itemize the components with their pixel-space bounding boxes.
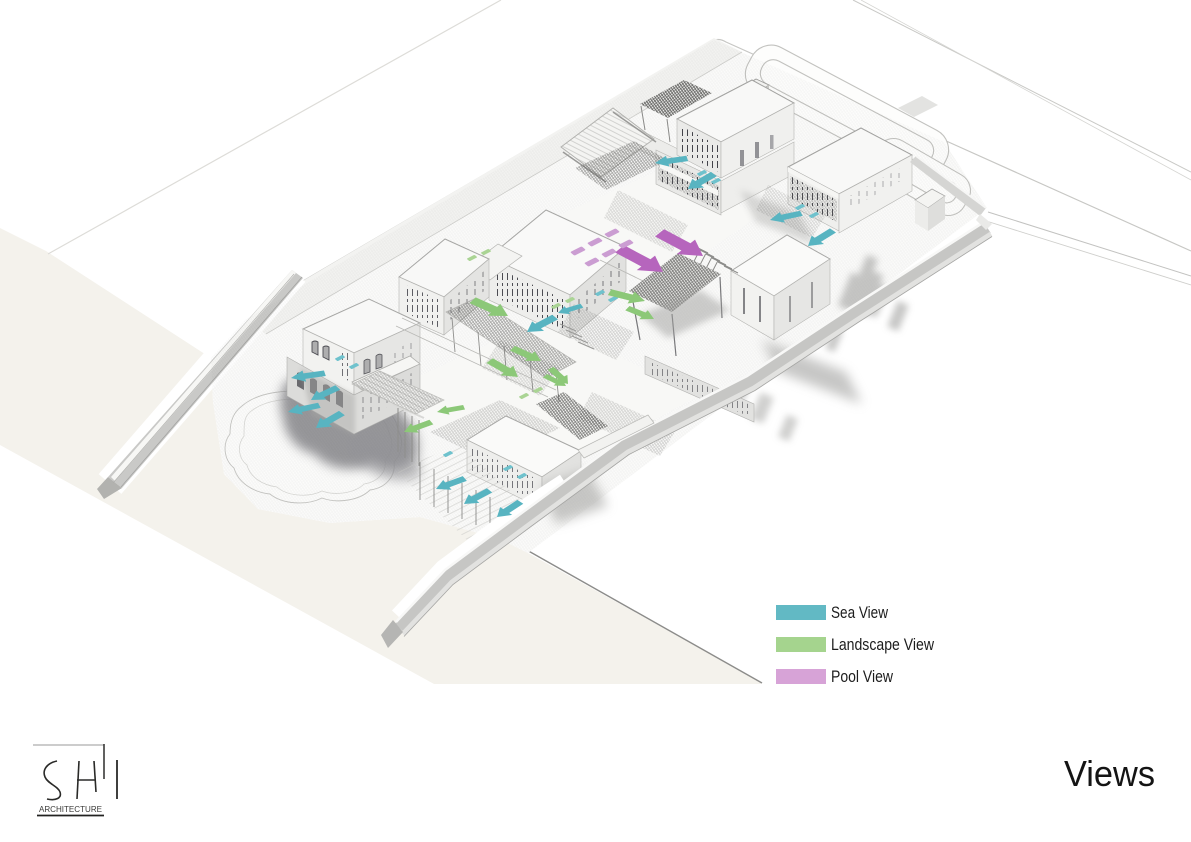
svg-text:Views: Views — [1064, 753, 1155, 794]
svg-text:Sea View: Sea View — [831, 603, 889, 622]
svg-text:Pool View: Pool View — [831, 667, 894, 686]
svg-text:Landscape View: Landscape View — [831, 635, 935, 654]
svg-text:ARCHITECTURE: ARCHITECTURE — [39, 805, 102, 814]
